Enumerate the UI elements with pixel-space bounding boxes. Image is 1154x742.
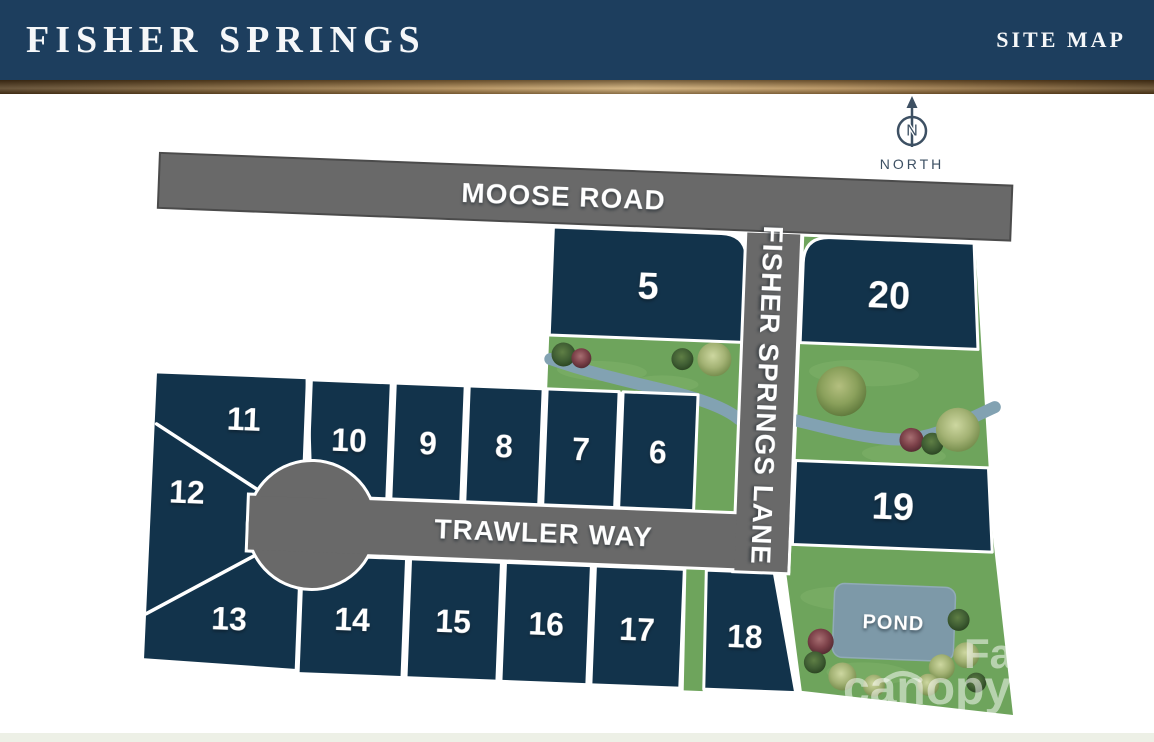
- bottom-edge-strip: [0, 733, 1154, 742]
- lot-17-label: 17: [619, 611, 656, 648]
- compass-north-label: NORTH: [880, 156, 945, 172]
- gold-divider-bar: [0, 80, 1154, 94]
- lot-9-label: 9: [418, 425, 437, 462]
- lot-11-label: 11: [226, 401, 261, 438]
- watermark-mls: MLS: [906, 706, 951, 722]
- lot-12-label: 12: [168, 473, 205, 510]
- lot-6-label: 6: [648, 434, 667, 471]
- lot-19-label: 19: [871, 485, 915, 529]
- lot-16-label: 16: [528, 605, 565, 642]
- lot-8-label: 8: [494, 428, 513, 465]
- page: FISHER SPRINGS SITE MAP: [0, 0, 1154, 742]
- lot-5-label: 5: [637, 265, 660, 308]
- site-map-canvas: MOOSE ROAD TRAWLER WAY FISHER SPRINGS LA…: [0, 94, 1154, 742]
- lot-13-label: 13: [211, 600, 248, 637]
- header: FISHER SPRINGS SITE MAP: [0, 0, 1154, 80]
- lot-7-label: 7: [571, 431, 590, 468]
- lot-15-label: 15: [435, 603, 472, 640]
- compass-n-letter: N: [906, 123, 918, 140]
- pond-label: POND: [862, 611, 925, 635]
- page-title: FISHER SPRINGS: [26, 18, 426, 62]
- compass-arrow-head-icon: [907, 96, 918, 108]
- site-plan: MOOSE ROAD TRAWLER WAY FISHER SPRINGS LA…: [140, 153, 1034, 715]
- lot-14-label: 14: [334, 601, 371, 638]
- page-subtitle: SITE MAP: [996, 27, 1126, 53]
- watermark-fragment: Fa: [964, 630, 1014, 677]
- north-compass: N NORTH: [880, 96, 945, 172]
- lot-20-label: 20: [867, 274, 911, 318]
- lot-10-label: 10: [331, 422, 368, 459]
- lot-18-label: 18: [726, 618, 763, 655]
